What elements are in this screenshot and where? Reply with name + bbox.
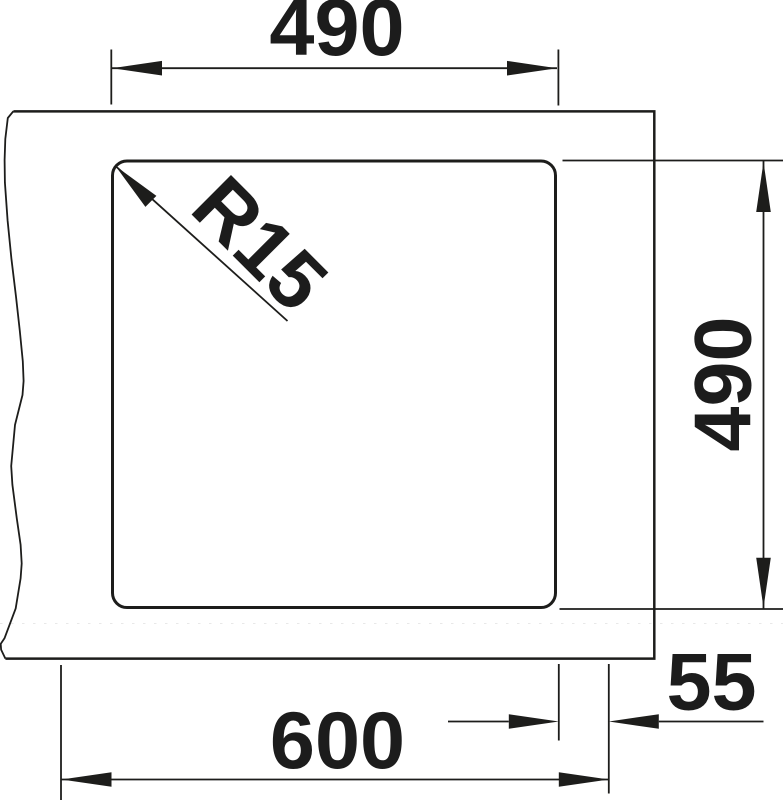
svg-text:490: 490 bbox=[269, 0, 404, 73]
svg-text:600: 600 bbox=[270, 696, 405, 786]
svg-text:55: 55 bbox=[666, 638, 756, 728]
svg-text:490: 490 bbox=[679, 316, 769, 451]
